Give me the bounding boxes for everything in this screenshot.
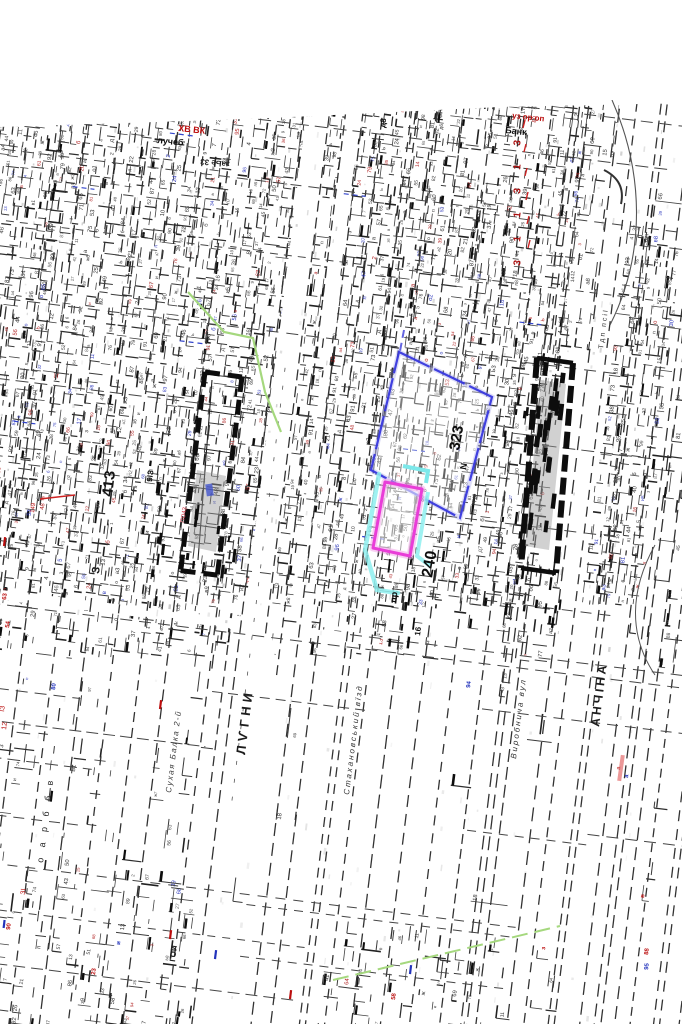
svg-text:27: 27 bbox=[85, 505, 92, 511]
svg-text:33: 33 bbox=[475, 210, 482, 216]
svg-text:64: 64 bbox=[621, 304, 628, 310]
svg-text:54: 54 bbox=[113, 459, 120, 465]
svg-text:з1: з1 bbox=[464, 363, 471, 369]
svg-text:48: 48 bbox=[249, 355, 256, 362]
svg-text:99: 99 bbox=[332, 565, 339, 571]
svg-text:37: 37 bbox=[361, 237, 368, 243]
svg-text:16: 16 bbox=[215, 275, 222, 282]
svg-text:82: 82 bbox=[460, 247, 467, 253]
svg-text:56: 56 bbox=[47, 261, 54, 267]
svg-text:55: 55 bbox=[659, 403, 666, 410]
svg-text:28: 28 bbox=[151, 149, 158, 155]
svg-text:а2: а2 bbox=[548, 628, 555, 634]
svg-text:32: 32 bbox=[641, 407, 648, 413]
svg-text:69: 69 bbox=[452, 990, 459, 997]
svg-text:ЗІ: ЗІ bbox=[20, 888, 28, 895]
svg-text:61: 61 bbox=[98, 637, 105, 643]
svg-text:99: 99 bbox=[323, 536, 330, 542]
svg-text:63: 63 bbox=[309, 562, 316, 569]
svg-text:13: 13 bbox=[101, 559, 108, 566]
svg-text:65: 65 bbox=[250, 365, 257, 371]
svg-text:п2: п2 bbox=[128, 470, 135, 476]
svg-text:40: 40 bbox=[303, 479, 310, 485]
svg-text:81: 81 bbox=[620, 557, 627, 564]
svg-text:52: 52 bbox=[655, 417, 662, 424]
svg-text:55: 55 bbox=[413, 179, 420, 185]
svg-text:11: 11 bbox=[90, 353, 97, 359]
svg-text:52: 52 bbox=[61, 344, 68, 350]
svg-text:83: 83 bbox=[162, 386, 169, 392]
svg-text:67: 67 bbox=[149, 281, 156, 288]
svg-text:13: 13 bbox=[330, 356, 337, 363]
svg-text:96: 96 bbox=[334, 544, 341, 551]
svg-text:18: 18 bbox=[411, 566, 418, 572]
svg-text:77: 77 bbox=[538, 650, 545, 657]
svg-text:14: 14 bbox=[415, 161, 422, 167]
svg-text:Ь1: Ь1 bbox=[71, 764, 78, 772]
svg-text:49: 49 bbox=[339, 513, 346, 519]
svg-text:56: 56 bbox=[166, 840, 173, 846]
svg-text:95: 95 bbox=[235, 128, 242, 135]
svg-text:43: 43 bbox=[500, 686, 507, 692]
svg-text:96: 96 bbox=[0, 618, 4, 624]
svg-text:22: 22 bbox=[129, 156, 136, 163]
svg-text:28: 28 bbox=[333, 533, 340, 540]
svg-text:89: 89 bbox=[153, 448, 160, 454]
svg-text:66: 66 bbox=[658, 193, 665, 200]
svg-text:11: 11 bbox=[414, 933, 421, 939]
svg-text:46: 46 bbox=[54, 585, 61, 592]
svg-text:в9: в9 bbox=[204, 586, 211, 593]
svg-text:92: 92 bbox=[98, 298, 105, 304]
svg-text:29: 29 bbox=[476, 588, 483, 594]
svg-text:34: 34 bbox=[67, 388, 74, 394]
svg-text:51: 51 bbox=[493, 133, 500, 139]
svg-text:96: 96 bbox=[29, 291, 36, 298]
svg-text:61: 61 bbox=[36, 160, 43, 166]
svg-text:76: 76 bbox=[107, 345, 114, 351]
svg-text:66: 66 bbox=[246, 290, 253, 296]
svg-text:81: 81 bbox=[460, 170, 467, 177]
svg-text:31: 31 bbox=[230, 440, 237, 446]
svg-text:а8: а8 bbox=[585, 278, 592, 285]
svg-text:Ь3: Ь3 bbox=[491, 365, 498, 373]
svg-text:66: 66 bbox=[533, 278, 540, 284]
svg-text:д7: д7 bbox=[478, 546, 485, 553]
svg-text:11: 11 bbox=[18, 129, 25, 136]
svg-text:д8: д8 bbox=[378, 117, 388, 128]
svg-text:30: 30 bbox=[669, 320, 676, 327]
svg-text:97: 97 bbox=[163, 375, 170, 382]
svg-text:49: 49 bbox=[483, 536, 490, 542]
svg-text:29: 29 bbox=[187, 430, 194, 436]
svg-text:б5: б5 bbox=[41, 284, 48, 291]
svg-text:44: 44 bbox=[515, 250, 522, 256]
svg-text:74: 74 bbox=[32, 886, 39, 892]
svg-text:87: 87 bbox=[129, 366, 136, 373]
svg-text:24: 24 bbox=[356, 179, 363, 185]
svg-text:25: 25 bbox=[176, 165, 183, 172]
svg-text:87: 87 bbox=[150, 187, 157, 194]
svg-text:10: 10 bbox=[160, 210, 167, 217]
svg-text:11: 11 bbox=[559, 149, 566, 155]
svg-text:30: 30 bbox=[617, 476, 624, 482]
svg-text:73: 73 bbox=[350, 341, 357, 348]
svg-text:34: 34 bbox=[209, 200, 216, 206]
svg-text:35: 35 bbox=[118, 247, 125, 253]
svg-text:60: 60 bbox=[431, 194, 438, 201]
svg-text:16: 16 bbox=[235, 207, 242, 213]
svg-text:81: 81 bbox=[676, 432, 682, 439]
svg-text:37: 37 bbox=[379, 255, 386, 261]
svg-text:88: 88 bbox=[382, 620, 389, 627]
svg-text:12: 12 bbox=[421, 602, 428, 608]
svg-text:14: 14 bbox=[570, 276, 577, 282]
svg-text:67: 67 bbox=[176, 467, 183, 473]
svg-text:17: 17 bbox=[508, 505, 515, 511]
svg-text:87: 87 bbox=[469, 260, 476, 267]
svg-text:55: 55 bbox=[129, 430, 136, 436]
svg-text:58: 58 bbox=[237, 545, 244, 552]
svg-text:60: 60 bbox=[590, 137, 597, 144]
svg-text:61: 61 bbox=[378, 285, 385, 291]
svg-text:67: 67 bbox=[329, 408, 336, 414]
svg-text:65: 65 bbox=[378, 205, 385, 211]
svg-text:39: 39 bbox=[437, 237, 444, 243]
svg-text:57: 57 bbox=[56, 943, 63, 949]
svg-text:26: 26 bbox=[503, 176, 510, 183]
svg-text:86: 86 bbox=[573, 190, 580, 196]
svg-text:67: 67 bbox=[120, 537, 127, 544]
svg-text:26: 26 bbox=[13, 1004, 20, 1011]
svg-text:81: 81 bbox=[606, 435, 613, 441]
svg-text:46: 46 bbox=[446, 537, 453, 543]
svg-text:44: 44 bbox=[254, 456, 261, 462]
svg-text:45: 45 bbox=[394, 129, 401, 135]
svg-text:27: 27 bbox=[175, 903, 182, 909]
svg-text:41: 41 bbox=[110, 204, 117, 211]
svg-text:98: 98 bbox=[420, 114, 427, 120]
svg-text:81: 81 bbox=[597, 496, 604, 502]
svg-text:41З: 41З bbox=[99, 470, 119, 498]
svg-text:21: 21 bbox=[463, 238, 470, 245]
svg-text:83: 83 bbox=[11, 419, 18, 425]
svg-text:93: 93 bbox=[125, 585, 132, 592]
svg-text:о1: о1 bbox=[92, 165, 99, 172]
svg-text:56: 56 bbox=[553, 582, 560, 588]
svg-text:б7: б7 bbox=[144, 874, 151, 881]
svg-text:29: 29 bbox=[507, 513, 514, 519]
svg-text:28: 28 bbox=[118, 145, 125, 151]
svg-text:97: 97 bbox=[463, 157, 470, 164]
svg-text:92: 92 bbox=[8, 446, 15, 453]
svg-text:60: 60 bbox=[108, 405, 115, 411]
svg-text:66: 66 bbox=[506, 612, 513, 618]
svg-text:67: 67 bbox=[15, 391, 22, 397]
svg-text:з6: з6 bbox=[132, 418, 139, 424]
svg-text:67: 67 bbox=[66, 562, 73, 569]
svg-text:21: 21 bbox=[325, 435, 332, 442]
svg-text:ж4: ж4 bbox=[325, 443, 332, 450]
svg-text:46: 46 bbox=[33, 130, 40, 137]
svg-text:п8: п8 bbox=[514, 280, 521, 286]
svg-text:82: 82 bbox=[514, 423, 521, 429]
svg-text:16: 16 bbox=[632, 506, 639, 512]
svg-text:91: 91 bbox=[332, 387, 339, 393]
svg-text:Ь5: Ь5 bbox=[353, 372, 360, 379]
svg-text:20: 20 bbox=[447, 249, 454, 256]
svg-text:79: 79 bbox=[367, 166, 374, 173]
svg-text:56: 56 bbox=[232, 314, 239, 321]
svg-text:16: 16 bbox=[499, 299, 506, 306]
svg-text:58: 58 bbox=[110, 997, 117, 1004]
svg-text:32: 32 bbox=[78, 306, 85, 312]
svg-text:61: 61 bbox=[440, 225, 447, 232]
svg-text:72: 72 bbox=[247, 405, 254, 412]
svg-text:91: 91 bbox=[529, 338, 536, 344]
svg-text:д6: д6 bbox=[438, 123, 445, 130]
svg-text:29: 29 bbox=[134, 126, 141, 132]
svg-text:37: 37 bbox=[237, 555, 244, 562]
svg-text:50: 50 bbox=[157, 506, 164, 513]
svg-text:37: 37 bbox=[131, 630, 138, 637]
svg-text:53: 53 bbox=[90, 209, 97, 216]
svg-text:59: 59 bbox=[14, 430, 21, 436]
svg-text:10: 10 bbox=[350, 526, 357, 532]
svg-text:42: 42 bbox=[63, 508, 70, 514]
svg-text:48: 48 bbox=[349, 424, 356, 430]
svg-text:63: 63 bbox=[167, 824, 174, 830]
svg-text:87: 87 bbox=[653, 473, 660, 479]
svg-text:25: 25 bbox=[93, 267, 100, 274]
svg-text:52: 52 bbox=[146, 199, 153, 205]
svg-text:99: 99 bbox=[639, 440, 646, 446]
svg-text:36: 36 bbox=[95, 502, 102, 509]
svg-text:33: 33 bbox=[454, 572, 461, 578]
svg-text:ж3: ж3 bbox=[123, 397, 130, 405]
svg-text:19: 19 bbox=[274, 582, 281, 589]
svg-text:71: 71 bbox=[79, 204, 86, 211]
svg-text:73: 73 bbox=[370, 354, 377, 361]
svg-text:17: 17 bbox=[76, 418, 83, 425]
svg-text:65: 65 bbox=[514, 349, 521, 355]
svg-text:ж8: ж8 bbox=[285, 597, 292, 604]
svg-text:о3: о3 bbox=[176, 604, 183, 611]
svg-text:76: 76 bbox=[418, 293, 425, 299]
svg-text:п7: п7 bbox=[193, 389, 200, 395]
svg-text:78: 78 bbox=[173, 258, 180, 264]
svg-text:13: 13 bbox=[68, 954, 75, 960]
svg-text:76: 76 bbox=[233, 594, 240, 600]
svg-text:12: 12 bbox=[1, 722, 9, 731]
svg-text:63: 63 bbox=[247, 232, 254, 238]
svg-text:45: 45 bbox=[675, 545, 682, 551]
svg-text:38: 38 bbox=[609, 406, 616, 413]
svg-text:46: 46 bbox=[0, 227, 6, 234]
svg-text:12: 12 bbox=[117, 427, 124, 434]
svg-text:98: 98 bbox=[332, 151, 339, 157]
svg-text:91: 91 bbox=[142, 341, 149, 347]
svg-text:ж6: ж6 bbox=[85, 254, 92, 261]
svg-text:14: 14 bbox=[654, 258, 661, 264]
svg-text:83: 83 bbox=[87, 475, 94, 481]
svg-text:86: 86 bbox=[221, 417, 228, 423]
svg-text:66: 66 bbox=[119, 408, 126, 414]
svg-text:21: 21 bbox=[19, 978, 26, 984]
svg-text:14: 14 bbox=[309, 418, 316, 424]
svg-text:38: 38 bbox=[49, 434, 56, 440]
svg-text:46: 46 bbox=[194, 308, 201, 314]
svg-text:82: 82 bbox=[431, 175, 438, 181]
svg-text:з9: з9 bbox=[80, 998, 87, 1005]
svg-text:97: 97 bbox=[206, 455, 213, 461]
svg-text:30: 30 bbox=[504, 378, 511, 385]
svg-text:15: 15 bbox=[657, 357, 664, 364]
svg-text:88: 88 bbox=[422, 336, 429, 342]
svg-text:43: 43 bbox=[284, 168, 291, 174]
svg-text:36: 36 bbox=[231, 259, 238, 266]
svg-text:88: 88 bbox=[423, 344, 430, 350]
svg-text:49: 49 bbox=[102, 276, 109, 283]
svg-text:46: 46 bbox=[181, 329, 188, 336]
svg-text:а3: а3 bbox=[115, 567, 122, 574]
svg-text:88: 88 bbox=[666, 632, 673, 638]
svg-text:68: 68 bbox=[443, 306, 450, 313]
svg-text:52: 52 bbox=[613, 524, 620, 531]
svg-text:51: 51 bbox=[86, 949, 93, 955]
svg-text:79: 79 bbox=[131, 339, 138, 345]
svg-text:12: 12 bbox=[570, 270, 577, 276]
svg-text:76: 76 bbox=[11, 510, 18, 516]
svg-text:39: 39 bbox=[176, 245, 183, 252]
svg-text:60: 60 bbox=[514, 468, 521, 474]
svg-text:29: 29 bbox=[30, 610, 37, 617]
svg-text:31: 31 bbox=[361, 402, 368, 409]
svg-text:в8: в8 bbox=[653, 236, 660, 243]
svg-text:б5: б5 bbox=[508, 566, 515, 573]
svg-text:11: 11 bbox=[499, 1012, 506, 1018]
svg-text:16: 16 bbox=[96, 424, 103, 430]
svg-text:65: 65 bbox=[406, 168, 413, 175]
svg-text:89: 89 bbox=[125, 898, 132, 904]
svg-text:94: 94 bbox=[177, 367, 184, 373]
svg-text:ІЗ: ІЗ bbox=[0, 705, 7, 712]
svg-text:21: 21 bbox=[162, 335, 169, 341]
svg-text:95: 95 bbox=[242, 166, 249, 172]
svg-text:97: 97 bbox=[31, 401, 38, 408]
svg-text:в1: в1 bbox=[30, 199, 37, 205]
svg-text:47: 47 bbox=[564, 324, 571, 331]
svg-text:60: 60 bbox=[236, 485, 243, 492]
svg-text:ж7: ж7 bbox=[382, 326, 389, 333]
svg-text:46: 46 bbox=[544, 324, 551, 331]
svg-text:41: 41 bbox=[157, 646, 164, 652]
svg-text:50: 50 bbox=[64, 859, 71, 866]
svg-text:69: 69 bbox=[249, 379, 256, 385]
svg-text:и5: и5 bbox=[225, 287, 232, 294]
svg-text:пр: пр bbox=[388, 591, 399, 604]
svg-text:23: 23 bbox=[202, 576, 209, 583]
svg-text:69: 69 bbox=[154, 332, 161, 339]
svg-text:91: 91 bbox=[308, 429, 315, 436]
svg-text:79: 79 bbox=[60, 163, 67, 170]
svg-text:о1: о1 bbox=[578, 253, 585, 260]
svg-text:94: 94 bbox=[387, 287, 394, 293]
svg-text:94: 94 bbox=[4, 389, 11, 395]
svg-text:67: 67 bbox=[467, 182, 474, 188]
svg-text:62: 62 bbox=[517, 634, 524, 641]
svg-text:57: 57 bbox=[208, 355, 215, 362]
svg-text:б4: б4 bbox=[574, 231, 581, 238]
svg-text:16: 16 bbox=[413, 626, 423, 636]
svg-text:з3: з3 bbox=[180, 418, 187, 424]
svg-text:47: 47 bbox=[487, 276, 494, 282]
svg-text:78: 78 bbox=[639, 389, 646, 395]
svg-text:91: 91 bbox=[350, 405, 357, 412]
svg-text:18: 18 bbox=[513, 270, 520, 277]
svg-text:81: 81 bbox=[430, 122, 437, 129]
svg-text:15: 15 bbox=[602, 149, 609, 156]
svg-text:64: 64 bbox=[160, 344, 167, 350]
svg-text:95: 95 bbox=[28, 409, 35, 416]
svg-text:60: 60 bbox=[334, 375, 341, 381]
svg-text:30: 30 bbox=[352, 478, 359, 484]
svg-text:56: 56 bbox=[13, 329, 20, 336]
svg-text:51: 51 bbox=[369, 347, 376, 353]
svg-text:56: 56 bbox=[0, 178, 5, 184]
svg-text:12: 12 bbox=[49, 313, 56, 320]
svg-text:90: 90 bbox=[167, 228, 174, 234]
svg-text:9ІЗ: 9ІЗ bbox=[145, 470, 155, 483]
svg-text:66: 66 bbox=[470, 336, 477, 342]
svg-text:40: 40 bbox=[22, 454, 29, 460]
svg-text:18: 18 bbox=[277, 813, 284, 820]
svg-text:93: 93 bbox=[625, 257, 632, 264]
svg-text:п7: п7 bbox=[225, 198, 232, 204]
svg-text:65: 65 bbox=[160, 179, 167, 185]
svg-text:98: 98 bbox=[521, 363, 528, 370]
